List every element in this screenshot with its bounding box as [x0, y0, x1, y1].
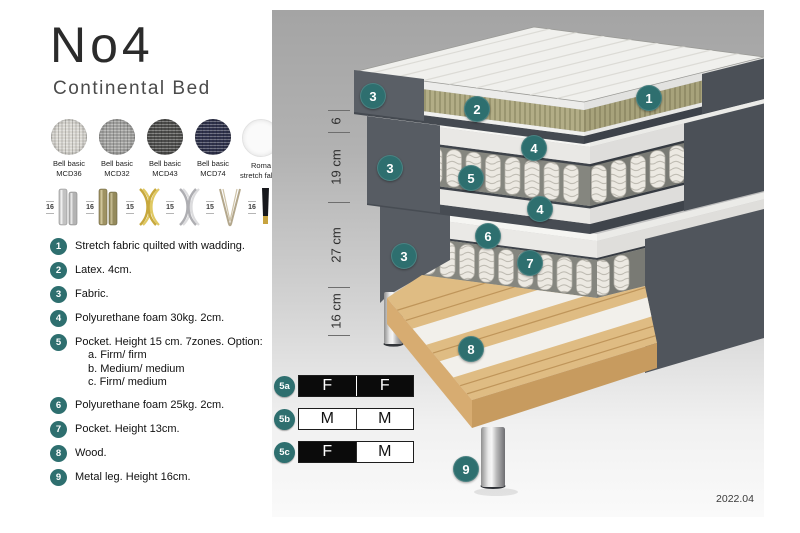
feature-text: Latex. 4cm. [75, 264, 132, 277]
swatch-label-line1: Bell basic [96, 159, 138, 169]
dimension-dash [206, 213, 214, 214]
callout-badge: 4 [521, 135, 547, 161]
leg-height: 16 [248, 199, 256, 216]
firmness-row: 5cFM [274, 442, 414, 462]
feature-item: 5 Pocket. Height 15 cm. 7zones. Option: … [50, 334, 278, 390]
feature-item: 4 Polyurethane foam 30kg. 2cm. [50, 310, 278, 327]
firmness-row: 5bMM [274, 409, 414, 429]
bed-bottom-box [380, 192, 764, 496]
fabric-swatch: Bell basic MCD32 [96, 119, 138, 180]
dimension-tick [328, 202, 350, 203]
leg-height: 15 [166, 199, 174, 216]
dimension-label: 27 cm [329, 217, 344, 273]
firmness-label-badge: 5a [274, 376, 295, 397]
feature-text: Wood. [75, 447, 107, 460]
swatch-label-line2: MCD74 [192, 169, 234, 179]
leg-height: 16 [86, 199, 94, 216]
feature-text: Pocket. Height 13cm. [75, 423, 180, 436]
firmness-cell: F [299, 442, 356, 462]
callout-badge: 4 [527, 196, 553, 222]
feature-item: 1 Stretch fabric quilted with wadding. [50, 238, 278, 255]
leg-height: 15 [206, 199, 214, 216]
feature-item: 8 Wood. [50, 445, 278, 462]
leg-height: 15 [126, 199, 134, 216]
swatch-label-line1: Bell basic [48, 159, 90, 169]
callout-badge: 5 [458, 165, 484, 191]
firmness-cell: F [299, 376, 356, 396]
feature-number-badge: 8 [50, 445, 67, 462]
swatch-circle [51, 119, 87, 155]
firmness-cell: M [356, 409, 414, 429]
leg-options: 16 16 15 [46, 187, 284, 227]
dimension-label: 16 cm [329, 283, 344, 339]
feature-item: 6 Polyurethane foam 25kg. 2cm. [50, 397, 278, 414]
metal-leg-front [481, 427, 506, 489]
callout-badge: 3 [391, 243, 417, 269]
swatch-label: Bell basic MCD32 [96, 159, 138, 178]
dimension-dash [166, 201, 174, 202]
feature-number-badge: 9 [50, 469, 67, 486]
swatch-label-line1: Bell basic [192, 159, 234, 169]
leg-height-value: 16 [46, 204, 54, 211]
dimension-dash [126, 201, 134, 202]
fabric-swatch: Bell basic MCD43 [144, 119, 186, 180]
leg-height-value: 16 [86, 204, 94, 211]
swatch-label: Bell basic MCD36 [48, 159, 90, 178]
version-label: 2022.04 [716, 493, 754, 505]
product-subtitle: Continental Bed [53, 78, 211, 100]
feature-number-badge: 5 [50, 334, 67, 351]
product-title: No4 [50, 20, 154, 70]
dimension-dash [166, 213, 174, 214]
dimension-dash [126, 213, 134, 214]
feature-number-badge: 4 [50, 310, 67, 327]
fabric-swatches: Bell basic MCD36 Bell basic MCD32 Bell b… [48, 119, 282, 180]
swatch-circle [99, 119, 135, 155]
feature-option: a. Firm/ firm [88, 349, 263, 363]
leg-height: 16 [46, 199, 54, 216]
feature-text: Fabric. [75, 288, 109, 301]
swatch-circle [147, 119, 183, 155]
firmness-bar: FM [298, 441, 414, 463]
feature-item: 3 Fabric. [50, 286, 278, 303]
leg-option: 15 [126, 187, 162, 227]
feature-option: c. Firm/ medium [88, 376, 263, 390]
feature-text: Stretch fabric quilted with wadding. [75, 240, 245, 253]
callout-badge: 9 [453, 456, 479, 482]
dimension-dash [46, 201, 54, 202]
dimension-dash [248, 201, 256, 202]
dimension-label: 19 cm [329, 139, 344, 195]
feature-option: b. Medium/ medium [88, 363, 263, 377]
firmness-options: 5aFF5bMM5cFM [274, 376, 414, 475]
leg-height-value: 15 [206, 204, 214, 211]
diagram-panel: 619 cm27 cm16 cm 123454367389 5aFF5bMM5c… [272, 10, 764, 517]
leg-icon [176, 187, 202, 227]
callout-badge: 1 [636, 85, 662, 111]
feature-options: a. Firm/ firmb. Medium/ mediumc. Firm/ m… [88, 349, 263, 390]
dimension-dash [86, 201, 94, 202]
firmness-bar: MM [298, 408, 414, 430]
callout-badge: 3 [377, 155, 403, 181]
firmness-cell: M [299, 409, 356, 429]
dimension-dash [206, 201, 214, 202]
swatch-label: Bell basic MCD74 [192, 159, 234, 178]
product-sheet: No4 Continental Bed Bell basic MCD36 Bel… [0, 0, 800, 533]
feature-number-badge: 6 [50, 397, 67, 414]
feature-list: 1 Stretch fabric quilted with wadding. 2… [50, 238, 278, 493]
dimension-dash [248, 213, 256, 214]
callout-badge: 3 [360, 83, 386, 109]
firmness-cell: M [356, 442, 414, 462]
callout-badge: 7 [517, 250, 543, 276]
swatch-label-line2: MCD32 [96, 169, 138, 179]
feature-item: 7 Pocket. Height 13cm. [50, 421, 278, 438]
feature-number-badge: 1 [50, 238, 67, 255]
callout-badge: 6 [475, 223, 501, 249]
dimension-dash [86, 213, 94, 214]
swatch-label-line2: MCD43 [144, 169, 186, 179]
swatch-label-line2: MCD36 [48, 169, 90, 179]
feature-text: Metal leg. Height 16cm. [75, 471, 191, 484]
swatch-label: Bell basic MCD43 [144, 159, 186, 178]
feature-text: Polyurethane foam 30kg. 2cm. [75, 312, 224, 325]
leg-icon [96, 187, 122, 227]
feature-item: 2 Latex. 4cm. [50, 262, 278, 279]
leg-option: 15 [206, 187, 244, 227]
feature-number-badge: 7 [50, 421, 67, 438]
leg-option: 16 [46, 187, 82, 227]
leg-icon [216, 187, 244, 227]
leg-height-value: 16 [248, 204, 256, 211]
leg-icon [136, 187, 162, 227]
fabric-swatch: Bell basic MCD74 [192, 119, 234, 180]
feature-text: Pocket. Height 15 cm. 7zones. Option: [75, 336, 263, 349]
firmness-row: 5aFF [274, 376, 414, 396]
swatch-label-line1: Bell basic [144, 159, 186, 169]
firmness-label-badge: 5c [274, 442, 295, 463]
leg-option: 16 [86, 187, 122, 227]
feature-item: 9 Metal leg. Height 16cm. [50, 469, 278, 486]
feature-number-badge: 2 [50, 262, 67, 279]
dimension-dash [46, 213, 54, 214]
fabric-swatch: Bell basic MCD36 [48, 119, 90, 180]
callout-badge: 2 [464, 96, 490, 122]
feature-number-badge: 3 [50, 286, 67, 303]
firmness-label-badge: 5b [274, 409, 295, 430]
firmness-cell: F [356, 376, 414, 396]
leg-icon [56, 187, 82, 227]
leg-height-value: 15 [126, 204, 134, 211]
firmness-bar: FF [298, 375, 414, 397]
leg-height-value: 15 [166, 204, 174, 211]
swatch-circle [195, 119, 231, 155]
leg-option: 15 [166, 187, 202, 227]
feature-text: Polyurethane foam 25kg. 2cm. [75, 399, 224, 412]
callout-badge: 8 [458, 336, 484, 362]
